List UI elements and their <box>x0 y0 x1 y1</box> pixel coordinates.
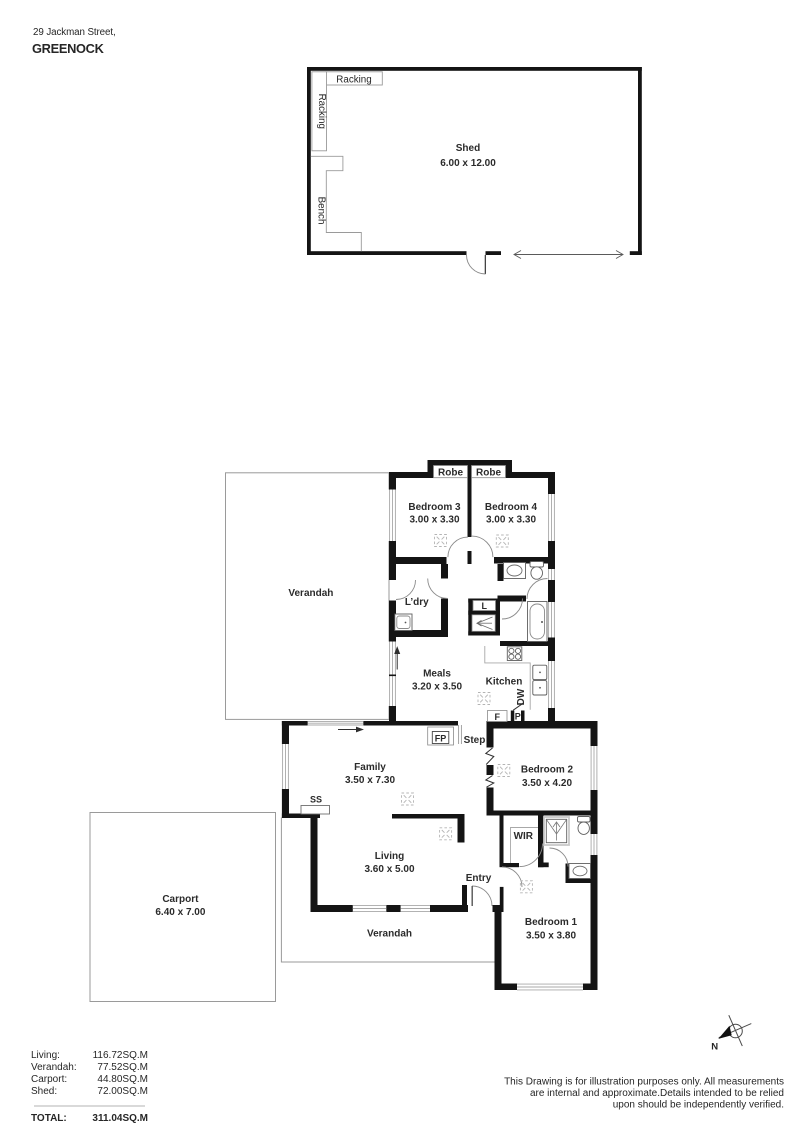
svg-text:Step: Step <box>464 735 486 746</box>
svg-text:3.60 x 5.00: 3.60 x 5.00 <box>364 864 414 875</box>
svg-text:This Drawing is for illustrati: This Drawing is for illustration purpose… <box>504 1077 784 1088</box>
svg-text:3.50 x 7.30: 3.50 x 7.30 <box>345 775 395 786</box>
svg-text:L’dry: L’dry <box>405 597 429 608</box>
svg-text:TOTAL:: TOTAL: <box>31 1113 67 1124</box>
svg-text:Shed:: Shed: <box>31 1086 57 1097</box>
svg-text:3.00 x 3.30: 3.00 x 3.30 <box>409 515 459 526</box>
svg-text:3.00 x 3.30: 3.00 x 3.30 <box>486 515 536 526</box>
svg-text:Kitchen: Kitchen <box>486 677 523 688</box>
svg-text:Family: Family <box>354 762 386 773</box>
svg-text:Entry: Entry <box>466 873 492 884</box>
svg-text:N: N <box>711 1042 718 1053</box>
svg-text:44.80SQ.M: 44.80SQ.M <box>97 1074 148 1085</box>
svg-text:DW: DW <box>516 688 527 705</box>
svg-text:Shed: Shed <box>456 143 480 154</box>
svg-text:Bedroom 4: Bedroom 4 <box>485 502 538 513</box>
svg-text:29 Jackman Street,: 29 Jackman Street, <box>33 27 116 38</box>
svg-text:FP: FP <box>435 733 447 743</box>
svg-text:Racking: Racking <box>336 74 371 85</box>
svg-text:Carport:: Carport: <box>31 1074 67 1085</box>
svg-text:Robe: Robe <box>438 467 463 478</box>
svg-text:P: P <box>515 712 521 722</box>
svg-text:72.00SQ.M: 72.00SQ.M <box>97 1086 148 1097</box>
svg-text:Living: Living <box>375 851 404 862</box>
svg-text:77.52SQ.M: 77.52SQ.M <box>97 1062 148 1073</box>
svg-text:Bench: Bench <box>316 197 327 225</box>
svg-text:SS: SS <box>310 795 322 805</box>
svg-text:F: F <box>495 712 501 722</box>
svg-text:3.20 x 3.50: 3.20 x 3.50 <box>412 682 462 693</box>
svg-text:Robe: Robe <box>476 467 501 478</box>
svg-text:Verandah: Verandah <box>288 588 333 599</box>
svg-text:upon should be independently v: upon should be independently verified. <box>613 1100 784 1111</box>
svg-text:6.40 x 7.00: 6.40 x 7.00 <box>155 907 205 918</box>
svg-text:Meals: Meals <box>423 669 451 680</box>
svg-text:Bedroom 2: Bedroom 2 <box>521 765 574 776</box>
svg-text:are internal and approximate.D: are internal and approximate.Details int… <box>530 1088 784 1099</box>
svg-text:Carport: Carport <box>162 894 199 905</box>
svg-text:311.04SQ.M: 311.04SQ.M <box>92 1113 148 1124</box>
svg-text:6.00 x 12.00: 6.00 x 12.00 <box>440 158 496 169</box>
svg-text:Racking: Racking <box>316 94 327 129</box>
svg-text:Verandah:: Verandah: <box>31 1062 77 1073</box>
svg-text:L: L <box>482 601 488 611</box>
svg-text:Verandah: Verandah <box>367 929 412 940</box>
svg-text:WIR: WIR <box>514 831 534 842</box>
svg-text:Bedroom 1: Bedroom 1 <box>525 917 578 928</box>
svg-text:GREENOCK: GREENOCK <box>32 41 105 56</box>
svg-text:3.50 x 3.80: 3.50 x 3.80 <box>526 931 576 942</box>
svg-text:116.72SQ.M: 116.72SQ.M <box>93 1050 148 1061</box>
svg-text:3.50 x 4.20: 3.50 x 4.20 <box>522 778 572 789</box>
svg-text:Living:: Living: <box>31 1050 60 1061</box>
svg-text:Bedroom 3: Bedroom 3 <box>408 502 461 513</box>
